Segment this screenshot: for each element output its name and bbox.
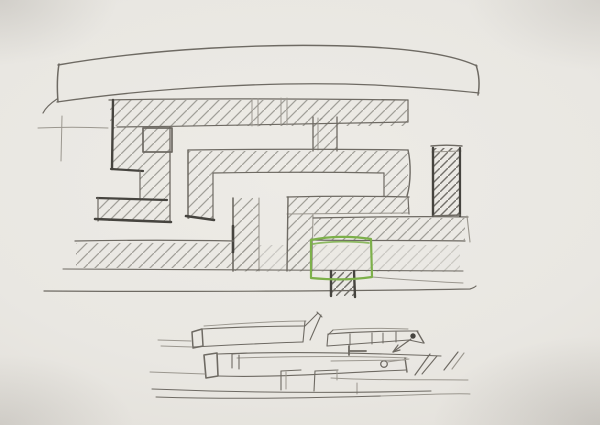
rail-bottom-ext	[409, 340, 423, 343]
ground-line-3	[156, 396, 381, 398]
ribbon-left-hook	[43, 99, 57, 113]
rail-right-diag	[417, 331, 424, 343]
band-left-hatch	[76, 243, 233, 268]
green-top-stroke	[313, 242, 369, 244]
beam-bottom-edge	[193, 342, 303, 347]
lower-bar-right-edge	[408, 197, 409, 214]
ground-line-3b	[381, 394, 470, 396]
rail-top-face	[333, 328, 408, 330]
base-line	[44, 286, 476, 291]
beam-diag-cap	[317, 312, 322, 317]
beam-top-edge	[202, 326, 304, 329]
sketch-paper	[0, 0, 600, 425]
step-a-edge	[281, 370, 301, 371]
ground-line-1	[150, 372, 205, 374]
band-top-line	[75, 240, 234, 241]
ground-line-2	[152, 389, 431, 392]
top-bar-left-edge	[112, 100, 113, 169]
circle-marker	[381, 361, 388, 368]
deck-end-cap	[204, 353, 218, 378]
top-bar-hatch	[110, 100, 408, 126]
beam-right-edge	[303, 321, 305, 342]
deck-bottom-edge	[217, 370, 406, 376]
margin-line-h	[38, 127, 108, 128]
rail-top-edge	[328, 331, 410, 334]
pillar-bottom-edge	[433, 215, 460, 216]
lower-leg-left-edge	[287, 197, 288, 271]
beam-top-face	[204, 321, 306, 326]
left-guide-1	[158, 340, 191, 341]
slash-4	[452, 353, 464, 369]
ribbon-left-end	[57, 64, 59, 102]
beam-end-cap	[192, 329, 203, 348]
below-green-line	[372, 277, 463, 283]
left-stair-hatch	[98, 127, 170, 221]
ribbon-top-line	[58, 45, 477, 66]
rail-left-edge	[327, 334, 328, 346]
perspective-sketch	[150, 312, 470, 398]
ribbon-right-end	[476, 65, 479, 95]
left-guide-2	[161, 346, 192, 347]
mid-bar-top-edge	[188, 149, 408, 150]
step-b-edge	[315, 370, 338, 371]
slash-3	[444, 352, 458, 370]
right-bar-right-edge	[467, 216, 470, 242]
rail-dot	[410, 333, 415, 338]
slash-2	[422, 356, 437, 374]
lower-bar-top-edge	[287, 196, 409, 197]
stub-hatch	[330, 272, 355, 296]
beam-diag-1	[305, 313, 318, 326]
stub-right-edge	[354, 271, 355, 297]
right-band-line	[331, 378, 468, 380]
architectural-sketch	[0, 0, 600, 425]
band-right-hatch	[237, 245, 460, 272]
pillar-hatch	[433, 148, 460, 216]
rail-bottom-edge	[327, 340, 409, 346]
deck-top-edge	[218, 353, 441, 356]
margin-line-v	[61, 116, 62, 161]
deck-inner-line	[237, 357, 407, 359]
right-bar-top-edge	[313, 217, 468, 218]
slash-1	[415, 354, 430, 375]
pillar-top-line-1	[431, 145, 462, 146]
